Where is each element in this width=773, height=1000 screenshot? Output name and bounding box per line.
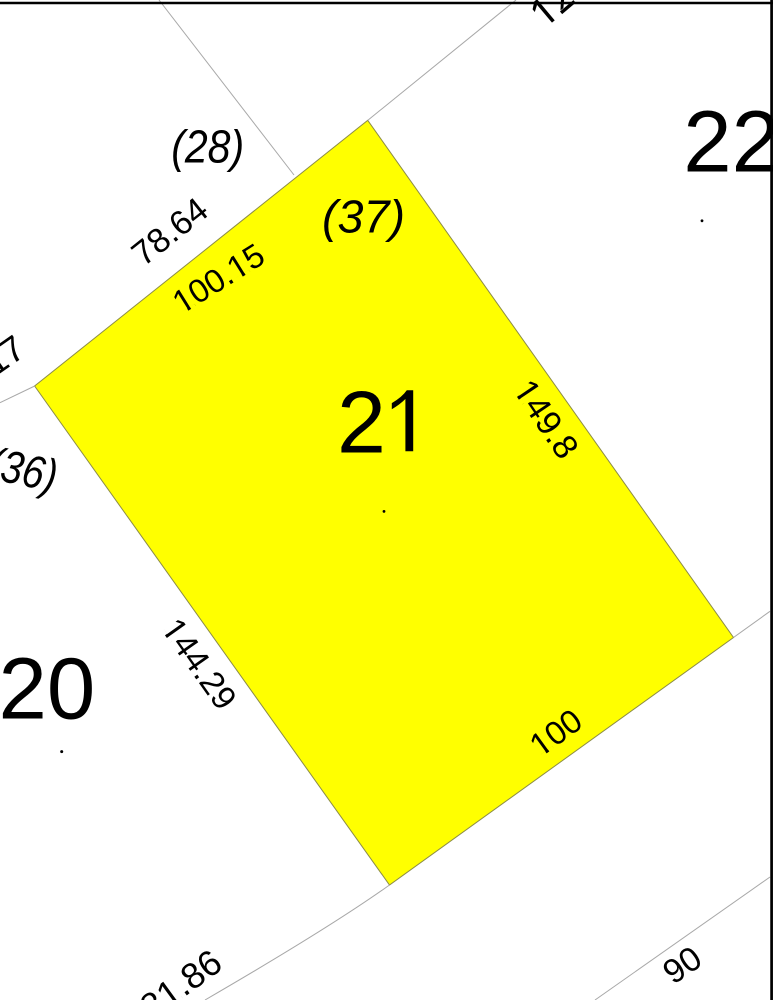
svg-text:(37): (37): [322, 191, 405, 243]
svg-text:(28): (28): [171, 121, 244, 173]
svg-text:20: 20: [0, 641, 95, 738]
svg-text:22: 22: [683, 93, 773, 190]
svg-text:2: 2: [337, 372, 386, 471]
